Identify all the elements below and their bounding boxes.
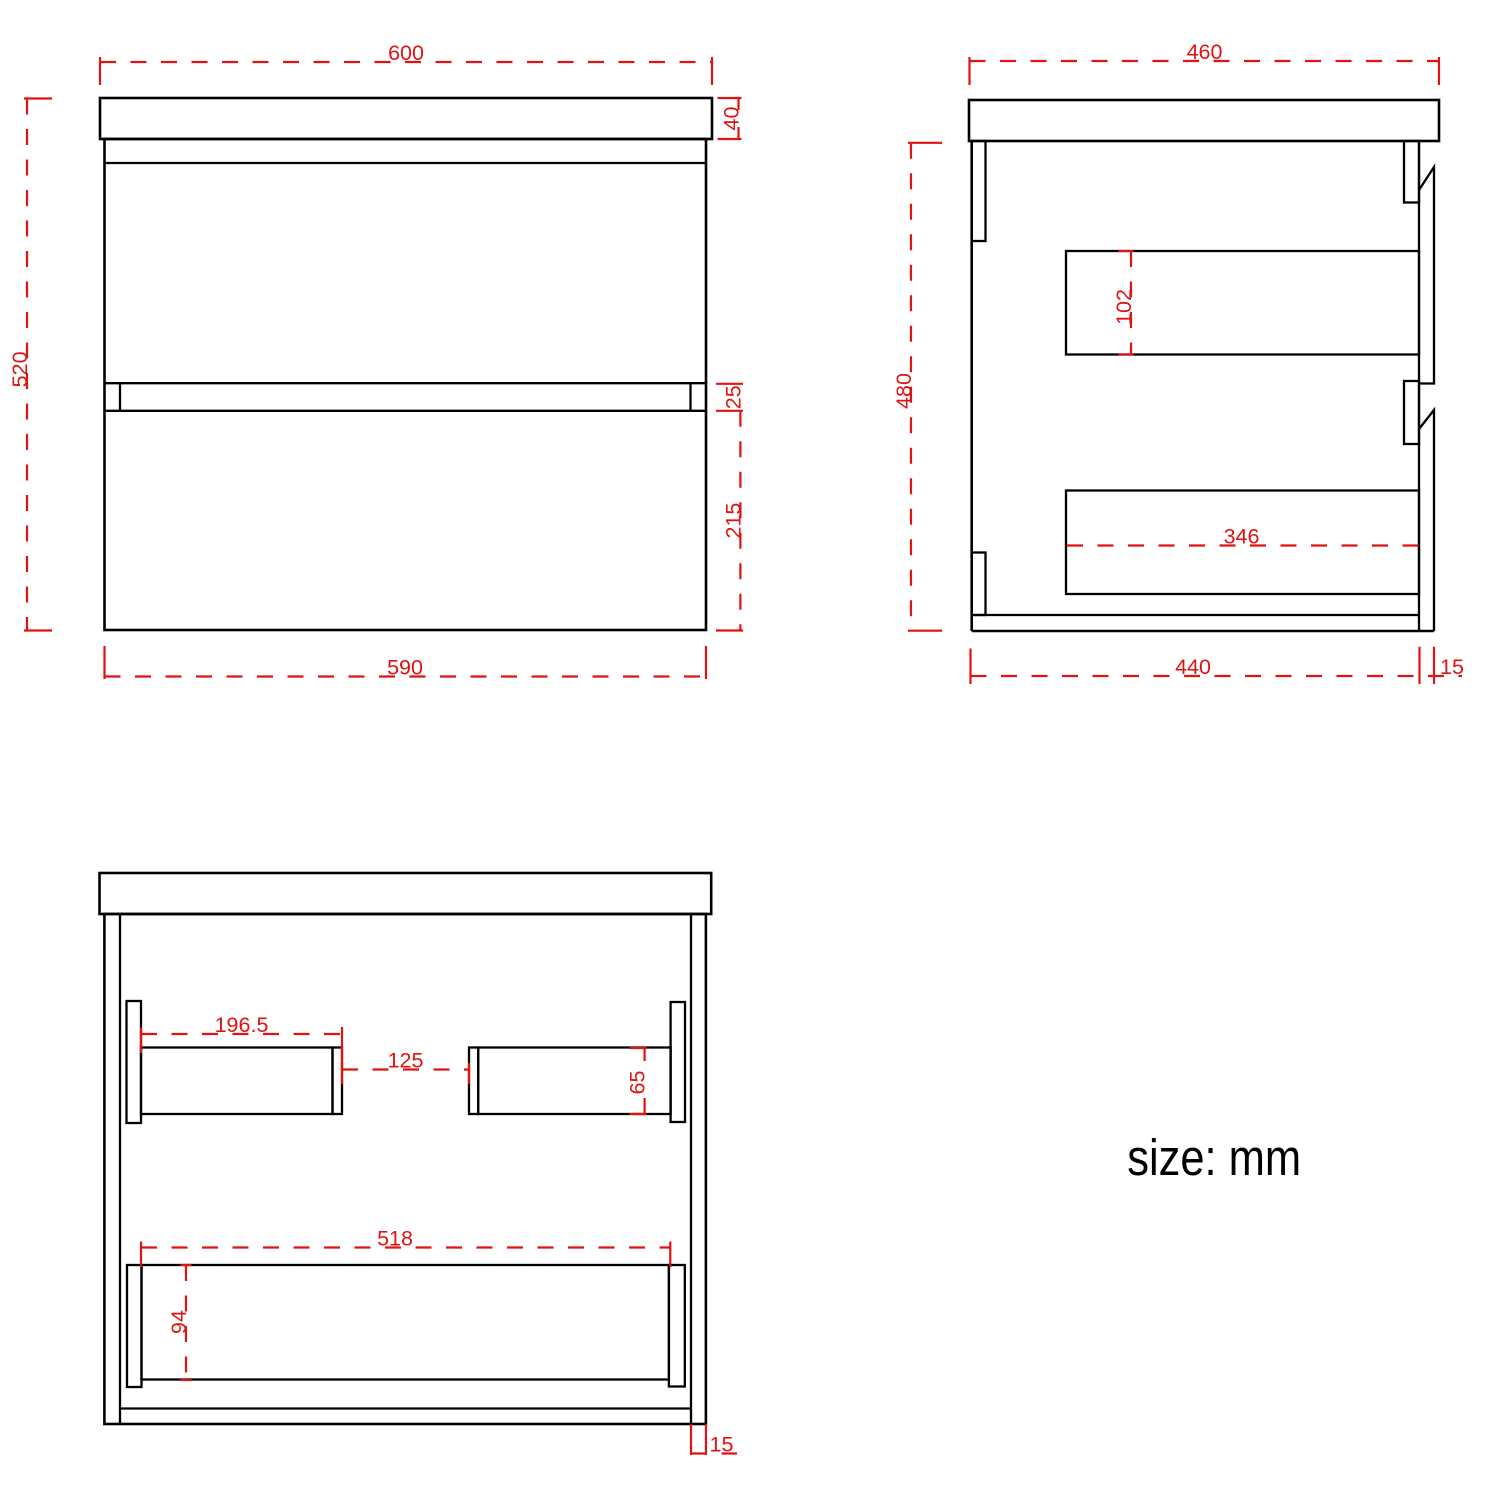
svg-text:65: 65 [626,1071,650,1095]
svg-text:94: 94 [167,1310,191,1334]
svg-text:40: 40 [720,107,744,131]
svg-text:15: 15 [710,1433,734,1457]
svg-text:125: 125 [388,1049,424,1073]
svg-text:518: 518 [377,1227,413,1251]
svg-text:size: mm: size: mm [1127,1130,1301,1187]
svg-text:600: 600 [388,41,424,65]
svg-text:460: 460 [1187,40,1223,64]
svg-text:215: 215 [721,503,745,539]
svg-text:480: 480 [892,373,916,409]
svg-text:25: 25 [721,385,745,409]
svg-text:520: 520 [8,351,32,387]
svg-text:346: 346 [1224,525,1260,549]
svg-text:440: 440 [1175,655,1211,679]
svg-text:15: 15 [1440,655,1464,679]
svg-text:102: 102 [1112,289,1136,325]
svg-text:590: 590 [387,656,423,680]
svg-text:196.5: 196.5 [215,1013,269,1037]
